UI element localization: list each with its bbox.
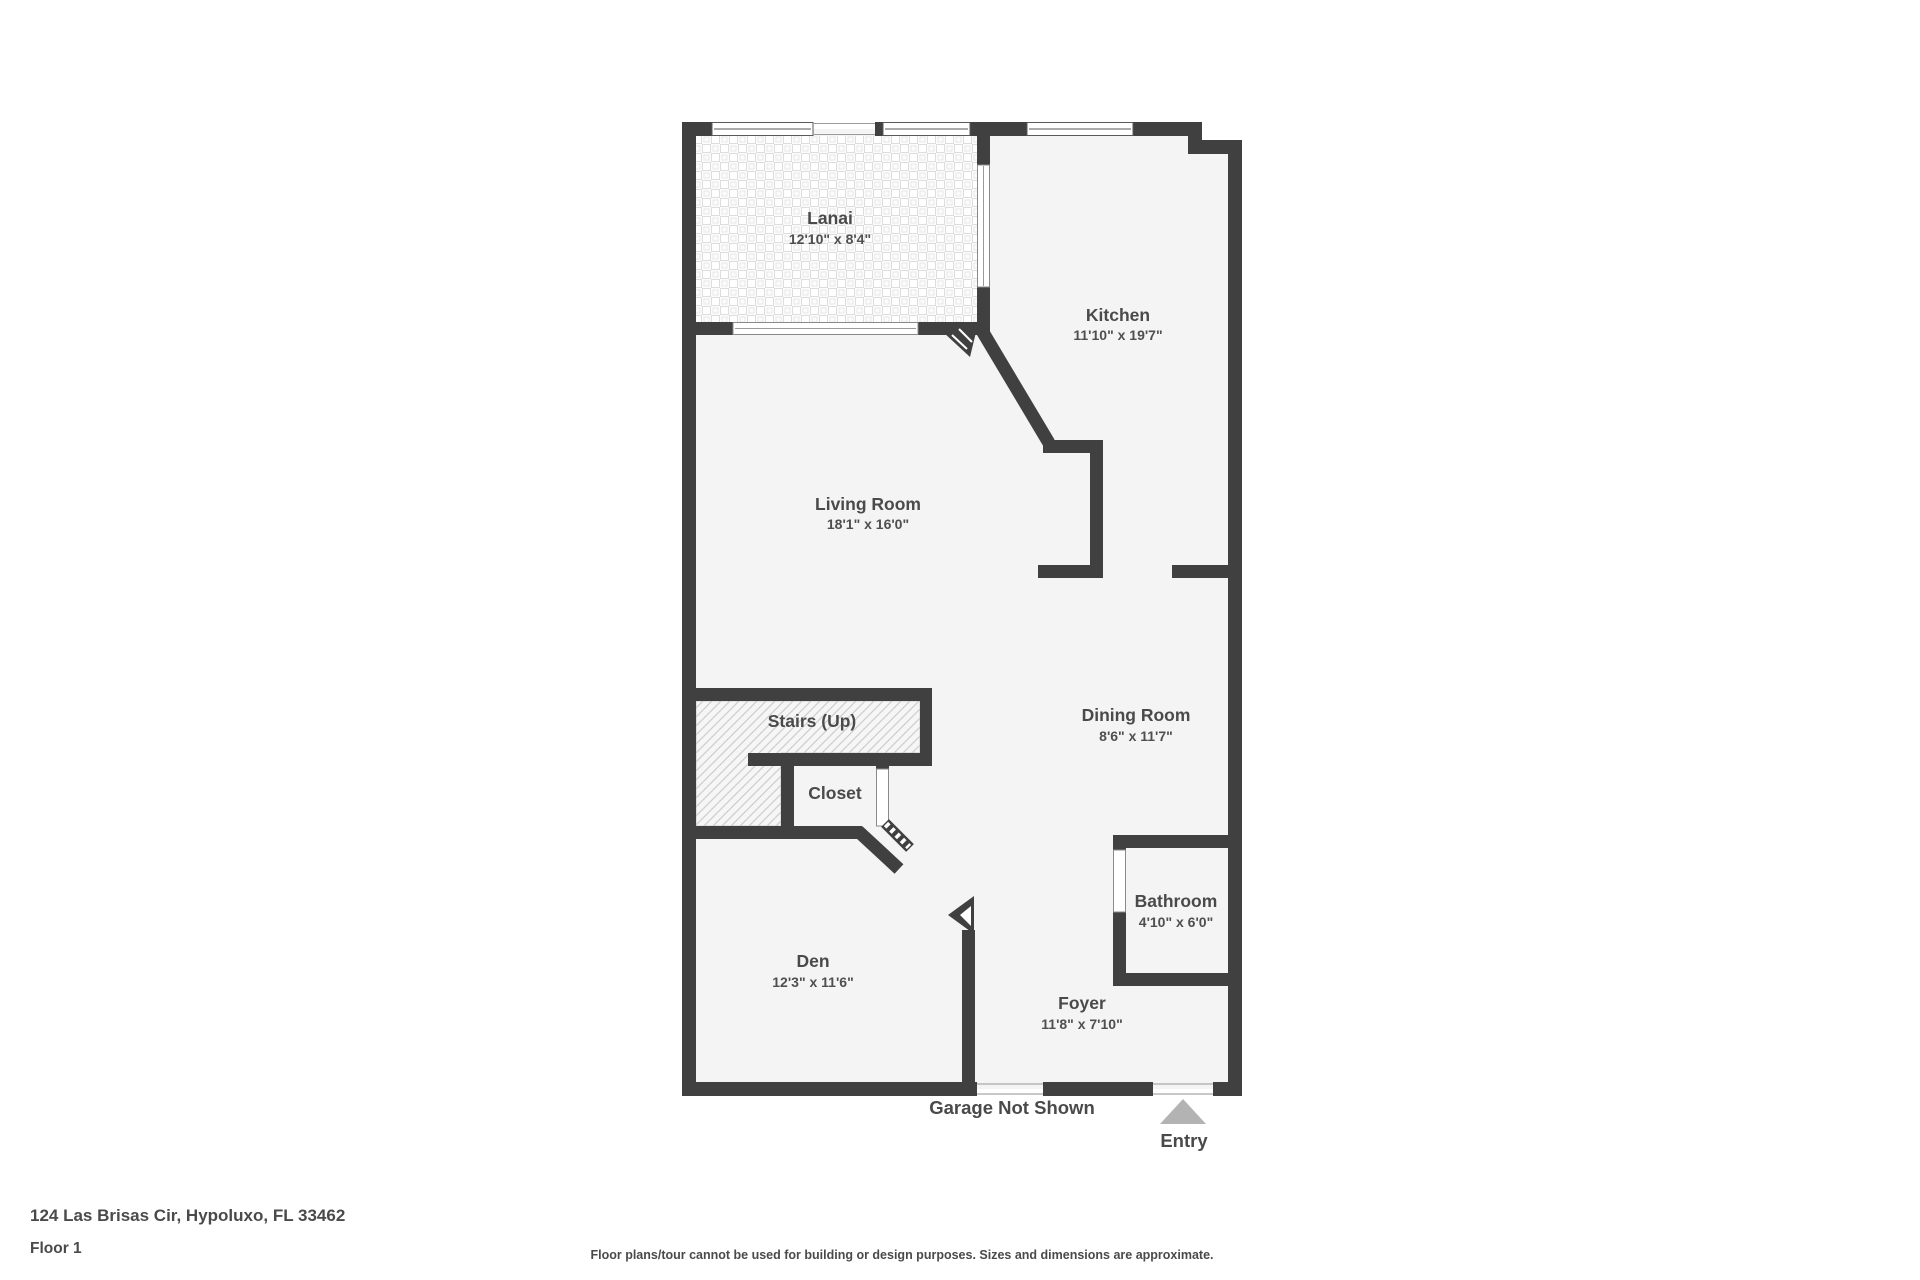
closet-door-opening (877, 769, 889, 826)
lanai-label: Lanai (807, 208, 853, 228)
lanai-dims: 12'10" x 8'4" (789, 231, 871, 247)
dining-room-dims: 8'6" x 11'7" (1099, 728, 1173, 744)
dining-room-label: Dining Room (1082, 705, 1191, 725)
kitchen-label: Kitchen (1086, 305, 1150, 325)
windows (712, 123, 1133, 136)
stairs-label: Stairs (Up) (768, 711, 856, 731)
footer: 124 Las Brisas Cir, Hypoluxo, FL 33462 F… (30, 1206, 1214, 1262)
entry-arrow-icon (1160, 1099, 1206, 1124)
disclaimer-text: Floor plans/tour cannot be used for buil… (590, 1248, 1213, 1262)
entry-label: Entry (1160, 1130, 1208, 1151)
floor-label: Floor 1 (30, 1240, 82, 1257)
bathroom-dims: 4'10" x 6'0" (1139, 914, 1213, 930)
bathroom-label: Bathroom (1135, 891, 1218, 911)
floor-plan: Lanai 12'10" x 8'4" Kitchen 11'10" x 19'… (0, 0, 1920, 1280)
bathroom-door-opening (1114, 850, 1126, 912)
lanai-tile-floor (696, 136, 977, 322)
living-room-dims: 18'1" x 16'0" (827, 516, 909, 532)
address-text: 124 Las Brisas Cir, Hypoluxo, FL 33462 (30, 1206, 345, 1225)
kitchen-dims: 11'10" x 19'7" (1073, 327, 1162, 343)
foyer-label: Foyer (1058, 993, 1106, 1013)
den-dims: 12'3" x 11'6" (772, 974, 853, 990)
den-label: Den (796, 951, 829, 971)
closet-label: Closet (808, 783, 862, 803)
garage-note: Garage Not Shown (929, 1097, 1095, 1118)
foyer-dims: 11'8" x 7'10" (1041, 1016, 1122, 1032)
living-room-label: Living Room (815, 494, 921, 514)
